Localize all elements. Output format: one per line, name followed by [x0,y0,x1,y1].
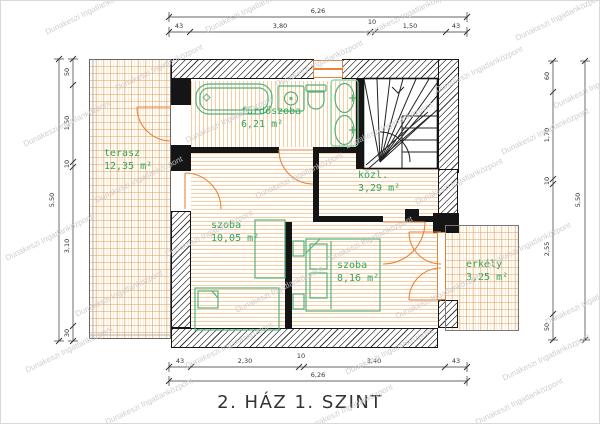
wall-corner-block [433,213,459,233]
wall-left-lower [171,211,191,328]
watermark-text: Dunakeszi Ingatlanközpont [44,0,134,37]
room-label-kozl: közl. 3,29 m² [358,169,400,195]
wall-left-seg1 [171,79,191,105]
room-area: 3,25 m² [466,271,508,284]
dim-label: 43 [175,22,183,30]
dim-label: 10 [63,160,71,168]
dim-label: 43 [452,357,460,365]
wall-left-seg2 [171,145,191,171]
watermark-text: Dunakeszi Ingatlanközpont [544,276,600,326]
dim-label: 5,50 [48,193,56,207]
page-title: 2. HÁZ 1. SZINT [1,392,599,413]
wall-top-left [171,59,314,79]
room-area: 12,35 m² [104,160,152,173]
room-name: erkély [466,258,508,271]
room-label-szoba2: szoba 8,16 m² [337,259,379,285]
dim-label: 50 [63,68,71,76]
room-name: szoba [211,219,259,232]
dim-label: 5,50 [574,193,582,207]
dim-label: 6,26 [311,7,325,15]
room-area: 6,21 m² [241,118,301,131]
wall-kozl-west [313,147,319,222]
dim-label: 2,30 [238,357,252,365]
wall-pillar-small [405,209,419,217]
wall-right-upper [438,59,459,173]
wall-kozl-south-left [313,216,383,222]
dim-label: 43 [176,357,184,365]
dim-label: 10 [297,352,305,360]
dim-label: 1,50 [63,116,71,130]
wall-between-szoba [285,222,292,328]
dim-label: 43 [452,22,460,30]
window-top [313,60,343,78]
watermark-text: Dunakeszi Ingatlanközpont [4,212,94,262]
wall-bath-south-left [191,147,279,153]
room-name: közl. [358,169,400,182]
room-name: fürdőszoba [241,105,301,118]
watermark-text: Dunakeszi Ingatlanközpont [514,0,600,43]
wall-right-lower [438,300,458,328]
dim-label: 30 [63,329,71,337]
dim-label: 60 [543,72,551,80]
room-label-szoba1: szoba 10,05 m² [211,219,259,245]
dim-label: 2,55 [543,242,551,256]
dim-label: 10 [543,177,551,185]
room-name: szoba [337,259,379,272]
watermark-text: Dunakeszi Ingatlanközpont [552,60,600,110]
dim-label: 1,50 [403,22,417,30]
dim-label: 3,40 [367,357,381,365]
dim-label: 1,70 [543,128,551,142]
room-area: 10,05 m² [211,232,259,245]
dim-label: 3,80 [273,22,287,30]
room-label-erkely: erkély 3,25 m² [466,258,508,284]
dim-label: 10 [368,18,376,26]
room-area: 3,29 m² [358,182,400,195]
wall-stairs-west [356,78,363,169]
wall-bottom [171,328,438,348]
dim-label: 50 [543,323,551,331]
watermark-text: Dunakeszi Ingatlanközpont [501,332,591,382]
room-label-terasz: terasz 12,35 m² [104,147,152,173]
watermark-text: Dunakeszi Ingatlanközpont [364,0,454,39]
floor-plan: terasz 12,35 m² fürdőszoba 6,21 m² közl.… [0,0,600,424]
terasz-floor [89,59,171,339]
dim-label: 3,10 [63,239,71,253]
room-name: terasz [104,147,152,160]
room-label-furdoszoba: fürdőszoba 6,21 m² [241,105,301,131]
dim-label: 6,26 [311,371,325,379]
room-area: 8,16 m² [337,272,379,285]
